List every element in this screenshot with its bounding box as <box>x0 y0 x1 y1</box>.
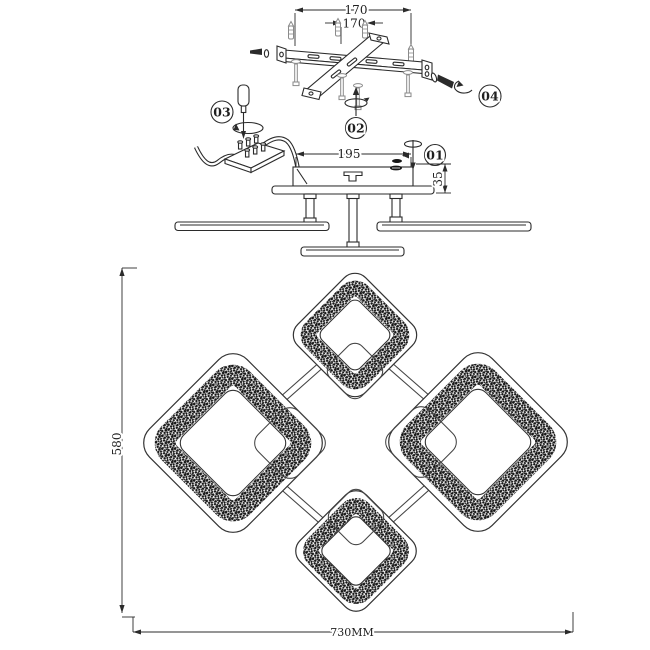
arm-right <box>377 222 531 231</box>
expansion-anchor <box>289 22 294 40</box>
dim-outer-170: 170 <box>345 3 368 17</box>
mounting-screw <box>404 71 413 97</box>
step-label-02: 02 <box>347 121 364 136</box>
expansion-anchor <box>336 19 341 37</box>
dim-195: 195 <box>338 147 361 161</box>
led-ring-left <box>135 345 330 540</box>
dim-730mm: 730MM <box>330 626 374 639</box>
flange-screw-left <box>250 49 269 58</box>
step-03: 03 <box>196 85 298 173</box>
fixture-plan-view: 580 730MM <box>110 267 576 639</box>
dimension-canopy-width: 195 <box>296 147 411 167</box>
led-ring-top <box>287 267 423 403</box>
bracket-flange-left <box>277 46 286 63</box>
dimension-fixture-depth: 580 <box>110 268 137 617</box>
arm-bottom <box>301 247 404 256</box>
step-04: 04 <box>430 72 501 107</box>
mounting-screw <box>354 84 363 110</box>
step-label-01: 01 <box>426 148 443 163</box>
dim-35: 35 <box>431 171 445 186</box>
led-ring-right <box>380 344 575 539</box>
expansion-anchor <box>409 45 414 63</box>
arm-left <box>175 222 329 231</box>
step-01: 01 <box>402 140 446 170</box>
stems-and-arms <box>175 194 531 256</box>
step-02: 02 <box>345 87 370 139</box>
canopy-screw-side <box>392 159 402 163</box>
rotation-arrow <box>454 81 472 93</box>
screwdriver-icon <box>238 85 249 139</box>
diagram-canvas: 170 170 <box>0 0 650 650</box>
expansion-anchor <box>363 21 368 39</box>
cover-plate <box>272 186 434 194</box>
mounting-hardware-view: 170 170 <box>175 3 531 256</box>
dimension-fixture-width: 730MM <box>133 612 573 639</box>
mounting-screw <box>292 60 301 86</box>
step-label-04: 04 <box>481 89 499 104</box>
mounting-screw <box>338 74 347 100</box>
step-label-03: 03 <box>213 105 230 120</box>
installation-diagram: 170 170 <box>0 0 650 650</box>
dim-580: 580 <box>110 433 124 456</box>
